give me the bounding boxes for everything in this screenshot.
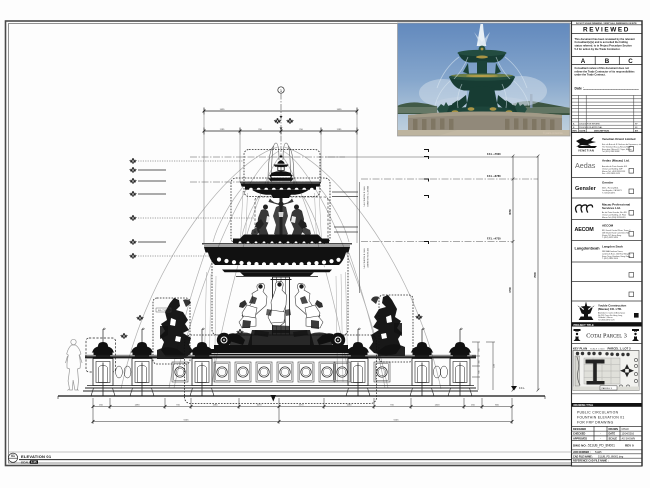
svg-text:5145: 5145	[394, 419, 400, 421]
svg-text:status referred. to in Proje: status referred. to in Project Procedure…	[575, 44, 633, 48]
svg-text:AS SHOWN: AS SHOWN	[622, 437, 636, 440]
svg-text:1490: 1490	[135, 405, 141, 407]
svg-text:Gensler: Gensler	[575, 186, 597, 192]
svg-text:1195: 1195	[337, 129, 342, 131]
svg-text:Tel: (853) 2870 5170: Tel: (853) 2870 5170	[598, 319, 614, 321]
svg-text:T: (852) 2830 3500: T: (852) 2830 3500	[602, 258, 618, 260]
svg-text:F.F.L +7600: F.F.L +7600	[487, 152, 501, 156]
svg-text:REV 0: REV 0	[625, 444, 634, 448]
svg-text:1280: 1280	[347, 405, 353, 407]
svg-text:FIG. TYPE-B: FIG. TYPE-B	[158, 310, 170, 312]
svg-text:T: (852) 3922 9000: T: (852) 3922 9000	[602, 237, 618, 239]
svg-text:Aedas: Aedas	[575, 161, 596, 170]
svg-text:1495: 1495	[220, 109, 226, 111]
svg-text:REVIEWED: REVIEWED	[583, 27, 630, 34]
svg-text:REV: REV	[573, 130, 578, 132]
svg-text:5.4 for action by the Trade Co: 5.4 for action by the Trade Contractor.	[575, 47, 621, 51]
svg-text:BY: BY	[635, 130, 639, 132]
svg-text:F.F.L +6780: F.F.L +6780	[487, 174, 501, 178]
svg-text:C: C	[628, 58, 633, 65]
svg-text:APPROVED: APPROVED	[573, 437, 587, 440]
svg-text:PUBLIC CIRCULATION: PUBLIC CIRCULATION	[577, 411, 619, 415]
svg-text:COTAI PARCEL 3: COTAI PARCEL 3	[586, 333, 627, 340]
svg-text:SCALE 1:2000: SCALE 1:2000	[590, 347, 605, 350]
svg-text:CAD FILE NAME :: CAD FILE NAME :	[573, 455, 593, 458]
svg-text:10/04/2016: 10/04/2016	[622, 433, 635, 436]
svg-text:4730: 4730	[508, 287, 512, 293]
svg-text:DESIGNED: DESIGNED	[573, 428, 586, 431]
svg-text:Consultant review of this docu: Consultant review of this document does …	[575, 66, 630, 70]
svg-text:Venetian Orient Limited: Venetian Orient Limited	[602, 137, 636, 141]
svg-text:DRAWING TITLE: DRAWING TITLE	[574, 404, 594, 407]
svg-text:TYPE 'B' FIGURE (TYP): TYPE 'B' FIGURE (TYP)	[363, 248, 365, 269]
svg-text:SCALE: SCALE	[609, 437, 618, 440]
svg-text:ELEVATION 01: ELEVATION 01	[21, 454, 52, 459]
svg-text:01: 01	[11, 454, 15, 458]
svg-text:DATE: DATE	[609, 433, 616, 436]
svg-text:1195: 1195	[220, 129, 225, 131]
svg-text:FOR APPROVAL: FOR APPROVAL	[587, 126, 603, 129]
svg-text:TYPE 'A' FIGURE (TYP): TYPE 'A' FIGURE (TYP)	[363, 186, 366, 207]
svg-text:T 213.623.4675: T 213.623.4675	[602, 192, 615, 194]
svg-text:7600: 7600	[533, 272, 537, 278]
svg-text:Date :: Date :	[575, 86, 584, 90]
svg-text:F.F.L +4730: F.F.L +4730	[487, 237, 501, 241]
svg-text:FOR FRP DRAWING: FOR FRP DRAWING	[577, 421, 614, 425]
svg-text:FOR REVIEW: FOR REVIEW	[587, 124, 600, 126]
svg-text:1070: 1070	[257, 405, 263, 407]
svg-text:PROJECT TITLE: PROJECT TITLE	[574, 323, 594, 327]
svg-text:AECOM: AECOM	[602, 224, 614, 228]
svg-text:DRAWN: DRAWN	[609, 428, 619, 431]
svg-text:under the Trade Contract.: under the Trade Contract.	[575, 73, 606, 77]
svg-text:LangdonSeah: LangdonSeah	[575, 247, 601, 251]
svg-text:1495: 1495	[337, 109, 343, 111]
svg-text:FRP BOWL SEGMENT: FRP BOWL SEGMENT	[366, 248, 368, 268]
svg-text:Fax: +853 2833 0925: Fax: +853 2833 0925	[602, 173, 620, 175]
svg-text:1:25: 1:25	[31, 460, 37, 464]
svg-text:DATE: DATE	[580, 129, 586, 132]
svg-text:AECOM: AECOM	[575, 227, 595, 233]
svg-text:Services Ltd.: Services Ltd.	[602, 206, 621, 210]
svg-text:511UB_PD_8N001: 511UB_PD_8N001	[588, 444, 615, 448]
svg-text:Macau Tel: (853) 2878 6281: Macau Tel: (853) 2878 6281	[602, 217, 626, 219]
svg-text:A: A	[581, 58, 586, 65]
svg-text:5145: 5145	[184, 419, 190, 421]
svg-text:PARCEL 1, LOT 3: PARCEL 1, LOT 3	[608, 346, 631, 350]
svg-text:Tel: (853) 2882 8888: Tel: (853) 2882 8888	[602, 151, 619, 153]
svg-text:511UB_PD_8N001.dwg: 511UB_PD_8N001.dwg	[598, 455, 624, 458]
svg-text:3050: 3050	[508, 209, 512, 215]
svg-text:Langdon Seah: Langdon Seah	[602, 245, 623, 249]
svg-text:Consultant(s)(s) and is accord: Consultant(s)(s) and is accorded the fol…	[575, 40, 629, 44]
svg-text:F.F.L.: F.F.L.	[519, 386, 525, 390]
svg-text:Aedas (Macau) Ltd.: Aedas (Macau) Ltd.	[602, 159, 630, 163]
svg-text:© paris-concorde: © paris-concorde	[543, 131, 563, 135]
svg-text:Gensler: Gensler	[602, 181, 614, 185]
svg-text:1400: 1400	[435, 405, 441, 407]
svg-text:(Macau) CO. LTD.: (Macau) CO. LTD.	[598, 307, 622, 311]
svg-text:PARCEL 3: PARCEL 3	[602, 387, 613, 390]
svg-text:This document has been reviewe: This document has been reviewed by the r…	[575, 37, 635, 41]
svg-text:CHECKED: CHECKED	[573, 433, 586, 436]
svg-text:1280: 1280	[213, 405, 219, 407]
svg-text:REFER TO DWG 8N003: REFER TO DWG 8N003	[366, 186, 368, 207]
svg-text:VENETIAN: VENETIAN	[578, 149, 594, 153]
svg-text:FOUNTAIN ELEVATION 01: FOUNTAIN ELEVATION 01	[577, 416, 625, 420]
svg-text:KEY PLAN: KEY PLAN	[573, 346, 587, 350]
svg-text:DWG NO :: DWG NO :	[573, 444, 588, 448]
svg-text:CHAO: CHAO	[622, 428, 629, 431]
svg-text:1070: 1070	[299, 405, 305, 407]
svg-text:relieve the Trade Contractor: relieve the Trade Contractor of its resp…	[575, 69, 636, 73]
svg-text:B: B	[605, 58, 610, 65]
svg-text:DESCRIPTION: DESCRIPTION	[594, 130, 609, 132]
